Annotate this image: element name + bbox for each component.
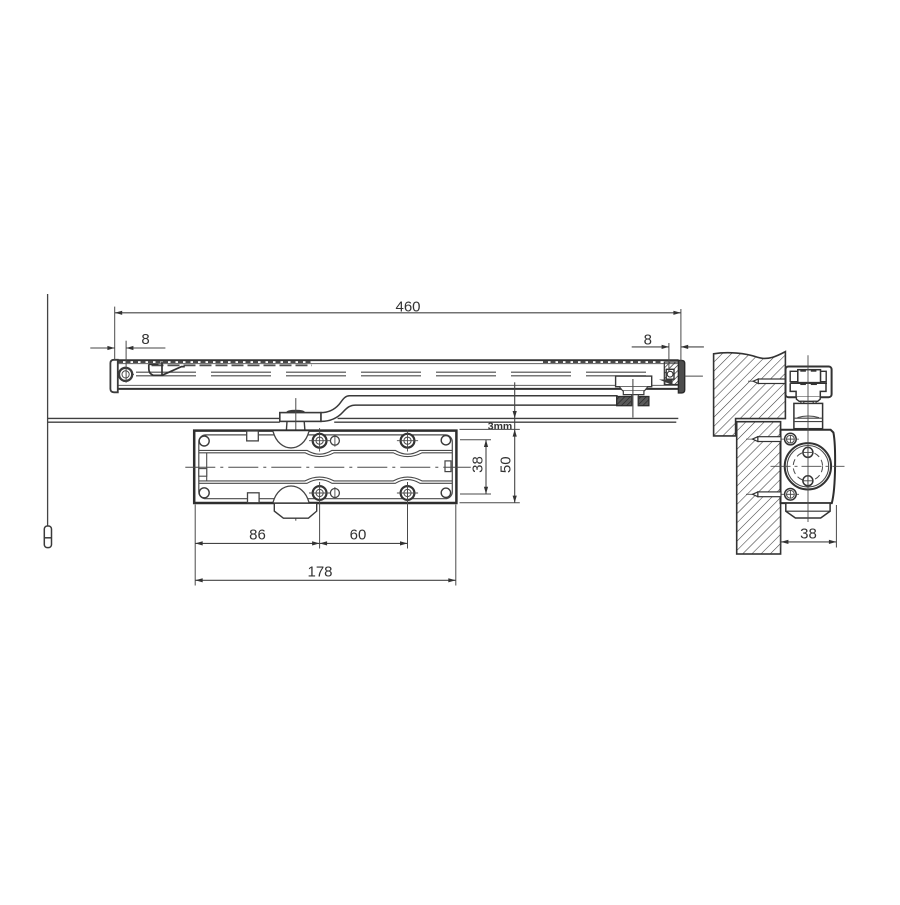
svg-text:38: 38 — [800, 526, 817, 543]
svg-text:50: 50 — [498, 456, 515, 473]
svg-text:8: 8 — [141, 331, 149, 348]
svg-text:60: 60 — [350, 527, 367, 544]
svg-text:178: 178 — [307, 564, 332, 581]
svg-text:8: 8 — [644, 332, 652, 349]
svg-text:3mm: 3mm — [488, 421, 513, 433]
svg-text:38: 38 — [470, 456, 487, 473]
svg-text:86: 86 — [249, 527, 266, 544]
svg-text:460: 460 — [395, 298, 420, 315]
